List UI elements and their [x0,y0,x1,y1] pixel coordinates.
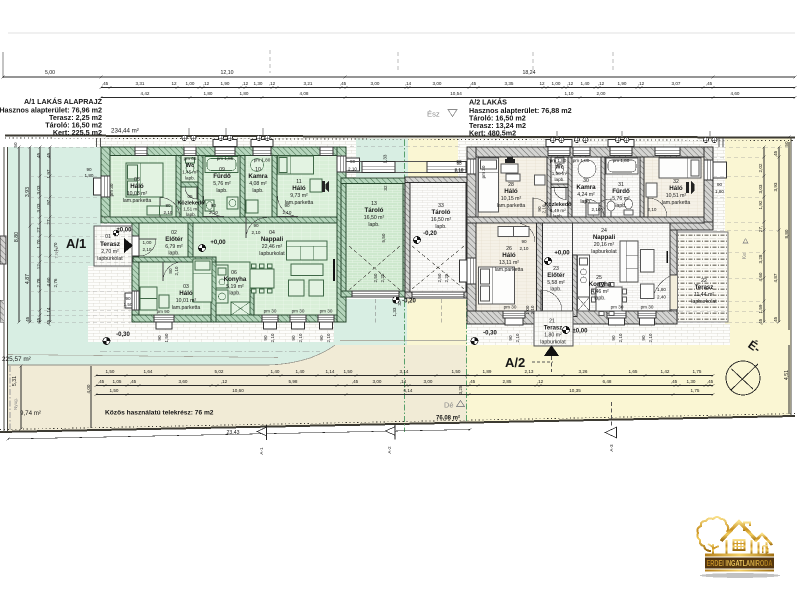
svg-text:1,50: 1,50 [124,302,133,307]
svg-text:80: 80 [211,203,217,208]
svg-text:Kamra: Kamra [248,173,268,180]
svg-text:3,00: 3,00 [373,379,382,384]
svg-text:lapb.: lapb. [168,251,179,257]
svg-text:,45: ,45 [758,318,763,325]
svg-text:,45: ,45 [130,379,137,384]
svg-text:-0,30: -0,30 [116,332,130,338]
svg-text:90: 90 [521,239,527,244]
svg-text:Nappali: Nappali [261,236,284,243]
svg-text:2,10: 2,10 [298,333,303,342]
svg-text:lam.parketta: lam.parketta [497,203,526,209]
svg-text:4,87: 4,87 [773,273,778,282]
svg-text:1,80: 1,80 [85,173,94,178]
svg-text:1,14: 1,14 [46,307,51,316]
svg-text:4,60: 4,60 [731,91,740,96]
svg-text:2,25: 2,25 [380,273,385,282]
svg-text:20,16 m²: 20,16 m² [594,242,615,248]
svg-text:1,30: 1,30 [254,81,263,86]
svg-text:1,50 m²: 1,50 m² [552,171,568,176]
svg-text:2,10: 2,10 [252,230,261,235]
svg-text:Ész: Ész [427,110,440,119]
svg-text:21: 21 [549,319,555,325]
svg-text:+0,00: +0,00 [554,251,570,257]
svg-text:1,33: 1,33 [383,154,388,163]
svg-text:1,40: 1,40 [581,81,590,86]
svg-text:32: 32 [383,185,388,191]
svg-text:1,49 m²: 1,49 m² [550,208,566,213]
svg-text:10,35: 10,35 [569,388,581,393]
svg-text:16,50 m²: 16,50 m² [364,215,385,221]
svg-text:10,03 m²: 10,03 m² [127,191,148,197]
svg-text:A/2: A/2 [505,355,525,370]
svg-text:pm 1,80: pm 1,80 [613,158,630,163]
svg-text:pm 30: pm 30 [504,305,517,310]
svg-text:Ke: Ke [742,253,748,259]
svg-text:1,90: 1,90 [221,81,230,86]
svg-text:pm 1,85: pm 1,85 [217,156,234,161]
svg-text:3,60: 3,60 [179,379,188,384]
svg-text:lapb.: lapb. [594,296,605,302]
svg-text:90: 90 [717,182,723,187]
svg-text:3,03: 3,03 [36,203,41,212]
svg-text:A/1: A/1 [66,236,86,251]
svg-text:3,93: 3,93 [25,187,31,197]
svg-text:2,10: 2,10 [530,305,535,314]
svg-text:2,78: 2,78 [36,278,41,287]
svg-text:lapb.: lapb. [368,222,379,228]
svg-text:2,50: 2,50 [373,273,378,282]
svg-text:6,48: 6,48 [603,379,612,384]
svg-text:1,80: 1,80 [240,91,249,96]
svg-text:1,30: 1,30 [687,379,696,384]
svg-text:pm 1,80: pm 1,80 [254,158,271,163]
svg-text:,45: ,45 [46,152,51,159]
svg-text:,45: ,45 [352,379,359,384]
svg-text:lapb.: lapb. [216,188,227,194]
svg-text:234,44 m²: 234,44 m² [111,128,139,135]
svg-text:4,00: 4,00 [86,384,91,393]
svg-text:1,05: 1,05 [113,379,122,384]
svg-text:pm 30: pm 30 [264,309,277,314]
svg-text:90: 90 [157,335,162,341]
svg-text:,12: ,12 [598,81,605,86]
svg-text:-0,30: -0,30 [483,331,497,337]
svg-text:lapb.: lapb. [186,212,196,217]
svg-text:Terasz: Terasz [695,285,714,291]
svg-text:2,10: 2,10 [348,167,357,172]
svg-text:pm 1,80: pm 1,80 [573,158,590,163]
svg-text:1,00: 1,00 [143,240,152,245]
svg-text:Háló: Háló [502,252,516,259]
svg-text:,45: ,45 [706,81,713,86]
svg-text:90: 90 [641,335,646,341]
svg-text:1,00: 1,00 [186,81,195,86]
svg-text:Háló: Háló [504,188,518,195]
svg-text:2,10: 2,10 [283,210,292,215]
svg-text:2,10: 2,10 [592,207,601,212]
svg-text:1,42: 1,42 [661,369,670,374]
svg-text:5,98: 5,98 [289,379,298,384]
svg-text:lapb.: lapb. [553,214,563,219]
svg-text:50: 50 [784,141,789,147]
svg-text:Kert: 225,5 m2: Kert: 225,5 m2 [53,128,102,137]
svg-text:lapb.: lapb. [580,199,591,205]
svg-text:pm 30: pm 30 [611,305,624,310]
svg-text:,12: ,12 [242,81,249,86]
svg-text:80: 80 [165,203,171,208]
svg-text:1,65: 1,65 [629,369,638,374]
svg-text:,45: ,45 [36,152,41,159]
svg-text:Konyha: Konyha [589,281,612,288]
svg-text:-0,20: -0,20 [423,231,437,237]
svg-text:pm 30: pm 30 [641,305,654,310]
svg-text:2,10: 2,10 [143,247,152,252]
svg-text:lapb.: lapb. [435,224,446,230]
svg-text:,12: ,12 [203,81,210,86]
svg-text:,45: ,45 [773,316,778,323]
svg-text:3,25: 3,25 [458,385,463,394]
svg-text:1,50: 1,50 [344,369,353,374]
svg-text:pm 30: pm 30 [109,183,114,196]
svg-text:1,64: 1,64 [144,369,153,374]
svg-text:05: 05 [187,194,193,199]
svg-text:Közös használatú telekrész: 76: Közös használatú telekrész: 76 m2 [105,410,214,417]
svg-text:,45: ,45 [707,379,714,384]
svg-text:23,43: 23,43 [227,430,240,436]
svg-text:4,42: 4,42 [141,91,150,96]
svg-text:3,07: 3,07 [672,81,681,86]
svg-text:80: 80 [168,268,173,274]
svg-text:Fürdő: Fürdő [213,173,231,180]
svg-text:1,14: 1,14 [326,369,335,374]
svg-text:2,10: 2,10 [542,204,547,213]
svg-text:,45: ,45 [470,81,477,86]
svg-text:2,10: 2,10 [618,333,623,342]
svg-text:3,03: 3,03 [758,184,763,193]
svg-text:22: 22 [701,278,707,284]
svg-text:90: 90 [456,161,462,166]
svg-text:1,40: 1,40 [271,369,280,374]
svg-text:Terasz: Terasz [544,326,563,332]
svg-text:ERDEI INGATLANIRODA: ERDEI INGATLANIRODA [707,558,773,568]
svg-text:1,89: 1,89 [483,369,492,374]
svg-text:,45: ,45 [98,379,105,384]
svg-text:1,80 m²: 1,80 m² [544,333,562,339]
svg-text:3,26: 3,26 [579,369,588,374]
svg-text:1,40: 1,40 [296,369,305,374]
svg-text:+0,00: +0,00 [210,240,226,246]
svg-text:6,14: 6,14 [404,388,413,393]
svg-text:1,80: 1,80 [657,287,666,292]
svg-text:,12: ,12 [537,379,544,384]
svg-text:lam.parketta: lam.parketta [123,198,152,204]
svg-text:Háló: Háló [669,185,683,192]
svg-text:4,24 m²: 4,24 m² [577,192,595,198]
svg-text:1,00: 1,00 [552,81,561,86]
svg-text:Terasz: Terasz [100,241,121,248]
svg-text:,12: ,12 [221,379,228,384]
svg-text:16,50 m²: 16,50 m² [431,217,452,223]
svg-text:1,92: 1,92 [758,200,763,209]
svg-text:90: 90 [508,335,513,341]
svg-text:,14: ,14 [400,379,407,384]
svg-text:lapburkolat: lapburkolat [540,340,566,346]
svg-text:,45: ,45 [102,81,109,86]
svg-text:3,31: 3,31 [136,81,145,86]
svg-text:lapburkolat: lapburkolat [591,249,617,255]
svg-text:10,15 m²: 10,15 m² [501,196,522,202]
svg-text:pm 65: pm 65 [184,156,197,161]
svg-text:18,24: 18,24 [523,70,536,76]
svg-text:lapb.: lapb. [550,287,561,293]
svg-text:12: 12 [171,81,177,86]
svg-text:11,44 m²: 11,44 m² [694,292,714,298]
svg-text:2,10: 2,10 [174,266,179,275]
svg-text:32: 32 [397,300,402,306]
svg-text:225,57 m²: 225,57 m² [2,356,31,363]
svg-text:2,10: 2,10 [515,333,520,342]
svg-text:3,00: 3,00 [371,81,380,86]
svg-text:T.Nyu.: T.Nyu. [54,245,59,258]
svg-text:A-2: A-2 [387,446,392,454]
svg-text:Nappali: Nappali [593,234,616,241]
svg-text:Nyug.: Nyug. [13,398,18,410]
svg-text:pm 90: pm 90 [157,309,170,314]
svg-text:1,33: 1,33 [392,307,397,316]
svg-text:1,80: 1,80 [715,189,724,194]
svg-text:2,10: 2,10 [648,333,653,342]
svg-text:4,46 m²: 4,46 m² [591,289,609,295]
svg-text:2,10: 2,10 [270,333,275,342]
svg-text:A-3: A-3 [609,444,614,452]
svg-text:6,79 m²: 6,79 m² [165,244,183,250]
svg-text:Tároló: Tároló [365,207,384,214]
svg-text:10,60: 10,60 [232,388,244,393]
svg-text:1,80: 1,80 [204,91,213,96]
svg-text:3,21: 3,21 [304,81,313,86]
svg-text:2,13: 2,13 [525,369,534,374]
svg-text:Wc: Wc [186,163,194,169]
svg-text:5,31: 5,31 [12,376,18,386]
svg-text:pm 30: pm 30 [320,309,333,314]
svg-text:9,74 m²: 9,74 m² [20,410,41,417]
svg-text:01: 01 [105,234,111,240]
svg-text:Háló: Háló [292,185,306,192]
svg-text:4,60: 4,60 [758,272,763,281]
svg-text:1,70: 1,70 [36,239,41,248]
svg-text:3,14: 3,14 [400,369,409,374]
svg-text:5,19 m²: 5,19 m² [226,284,244,290]
svg-text:-0,20: -0,20 [402,299,416,305]
svg-text:pm 30: pm 30 [292,309,305,314]
svg-text:2,50: 2,50 [437,273,442,282]
svg-text:4,08 m²: 4,08 m² [249,181,267,187]
svg-text:,45: ,45 [773,150,778,157]
svg-text:9,73 m²: 9,73 m² [290,193,308,199]
svg-text:Tároló: Tároló [432,209,451,216]
svg-text:2,02: 2,02 [758,163,763,172]
svg-text:lapb.: lapb. [252,188,263,194]
svg-text:1,50: 1,50 [164,333,169,342]
svg-text:90: 90 [319,335,324,341]
svg-text:12: 12 [539,81,545,86]
svg-text:,12: ,12 [269,81,276,86]
svg-text:10,01 m²: 10,01 m² [176,298,197,304]
svg-text:2,10: 2,10 [520,246,529,251]
svg-text:Dé: Dé [444,401,453,410]
svg-text:90: 90 [284,203,290,208]
svg-text:3,93: 3,93 [773,182,778,191]
svg-text:1,45 m²: 1,45 m² [182,170,198,175]
svg-text:,45: ,45 [36,317,41,324]
svg-text:27: 27 [36,227,41,233]
svg-text:90: 90 [253,223,259,228]
svg-text:A-1: A-1 [259,447,264,455]
svg-text:3,00: 3,00 [424,379,433,384]
svg-text:2,10: 2,10 [648,207,657,212]
svg-text:1,59: 1,59 [758,304,763,313]
svg-text:1,50: 1,50 [452,369,461,374]
svg-text:2,40: 2,40 [657,295,666,300]
svg-text:5,02: 5,02 [215,369,224,374]
svg-text:5,76 m²: 5,76 m² [612,196,630,202]
svg-text:Kamra: Kamra [576,184,596,191]
svg-text:Háló: Háló [179,290,193,297]
svg-text:12,10: 12,10 [221,70,234,76]
svg-text:76,08 m²: 76,08 m² [436,415,460,422]
svg-text:2,10: 2,10 [164,210,173,215]
svg-text:4,60: 4,60 [46,277,51,286]
svg-text:,12: ,12 [567,81,574,86]
svg-text:10,54: 10,54 [450,91,462,96]
svg-text:1,90: 1,90 [618,81,627,86]
svg-text:3,35: 3,35 [505,81,514,86]
svg-text:Előtér: Előtér [165,236,183,243]
svg-text:,12: ,12 [638,81,645,86]
svg-text:Kert: 480,5m2: Kert: 480,5m2 [469,129,516,138]
svg-text:lapburkolat: lapburkolat [259,251,285,257]
svg-text:90: 90 [291,335,296,341]
svg-text:lapb.: lapb. [229,291,240,297]
svg-text:Konyha: Konyha [224,276,247,283]
svg-text:12,: 12, [36,263,41,269]
svg-text:3,00: 3,00 [433,81,442,86]
svg-text:1,75: 1,75 [693,369,702,374]
svg-text:±0,00: ±0,00 [573,329,589,335]
svg-text:Előtér: Előtér [547,272,565,279]
svg-text:5,76 m²: 5,76 m² [213,181,231,187]
svg-text:8,80: 8,80 [14,232,20,242]
svg-text:2,85: 2,85 [503,379,512,384]
svg-text:2,76: 2,76 [53,278,58,287]
svg-text:2,25: 2,25 [444,273,449,282]
svg-text:8,80: 8,80 [784,229,789,238]
svg-text:lam.parketta: lam.parketta [662,200,691,206]
svg-text:2,10: 2,10 [326,333,331,342]
svg-text:Fürdő: Fürdő [612,188,630,195]
svg-text:lapb.: lapb. [185,176,195,181]
svg-text:4,87: 4,87 [25,274,31,284]
svg-text:5,00: 5,00 [45,70,55,76]
svg-text:1,51 m²: 1,51 m² [183,207,199,212]
svg-text:3,03: 3,03 [36,185,41,194]
svg-text:90: 90 [125,296,131,301]
svg-text:lam.parketta: lam.parketta [495,267,524,273]
svg-text:2,70 m²: 2,70 m² [101,249,119,255]
svg-text:lapburkolat: lapburkolat [691,299,717,305]
svg-text:2,00: 2,00 [597,91,606,96]
svg-text:1,97: 1,97 [46,169,51,178]
svg-text:1,50: 1,50 [106,369,115,374]
svg-text:90: 90 [263,335,268,341]
svg-text:lapb.: lapb. [615,203,626,209]
svg-text:Wc: Wc [555,165,563,171]
svg-text:lapb.: lapb. [555,177,565,182]
svg-text:pm 1,80: pm 1,80 [550,158,567,163]
svg-text:50: 50 [13,142,18,148]
svg-text:lam.parketta: lam.parketta [172,305,201,311]
svg-text:27: 27 [46,219,51,225]
svg-text:2,10: 2,10 [455,168,464,173]
svg-text:5,50: 5,50 [381,233,386,242]
svg-text:Háló: Háló [130,183,144,190]
svg-text:4,08: 4,08 [300,91,309,96]
svg-text:13,11 m²: 13,11 m² [499,260,519,266]
svg-text:90: 90 [611,335,616,341]
svg-text:90: 90 [86,167,92,172]
svg-text:27,: 27, [758,226,763,232]
svg-text:2,10: 2,10 [209,210,218,215]
svg-text:lapburkolat: lapburkolat [97,256,123,262]
svg-text:,97: ,97 [46,199,51,206]
svg-text:,45: ,45 [469,379,476,384]
svg-text:1,75: 1,75 [691,388,700,393]
svg-text:,45: ,45 [25,316,30,323]
svg-text:22,46 m²: 22,46 m² [262,244,283,250]
svg-text:pm 30: pm 30 [481,165,486,178]
svg-text:4,51: 4,51 [784,370,790,380]
svg-text:,45: ,45 [671,379,678,384]
svg-text:1,10: 1,10 [565,91,574,96]
svg-text:1,50: 1,50 [110,388,119,393]
svg-text:,14: ,14 [405,81,412,86]
svg-text:,45: ,45 [340,81,347,86]
svg-text:10,51 m²: 10,51 m² [666,193,687,199]
svg-text:5,58 m²: 5,58 m² [547,280,565,286]
svg-text:3,28: 3,28 [758,254,763,263]
svg-text:,45: ,45 [46,319,51,326]
